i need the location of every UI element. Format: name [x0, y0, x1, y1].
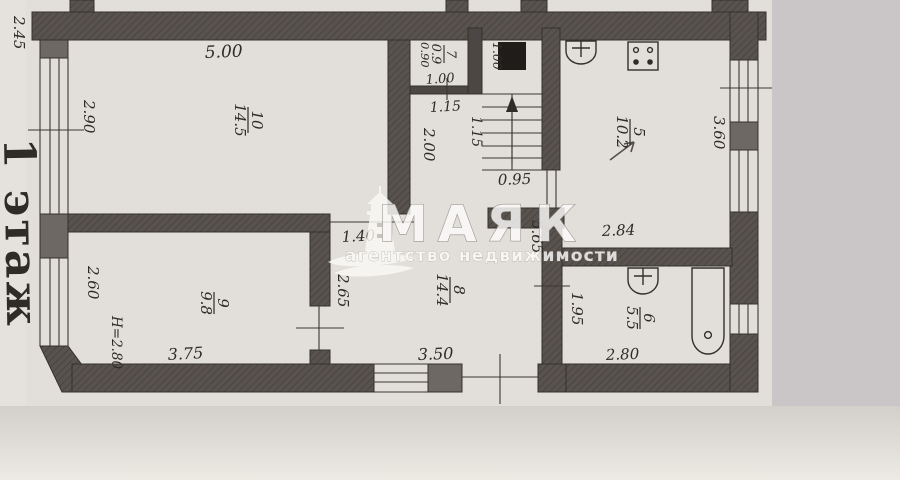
room-number: 8 — [450, 285, 468, 295]
room-number: 5 — [630, 127, 648, 137]
room-area: 14.5 — [231, 103, 249, 136]
floor-label: 1 этаж — [0, 137, 47, 329]
wall-segment-right — [730, 122, 758, 150]
wall-segment-bottom — [428, 364, 462, 392]
room-area: 10.2 — [613, 115, 631, 148]
dim-1-00-room7: 1.00 — [425, 71, 455, 88]
dim-5-00: 5.00 — [204, 42, 243, 63]
wall-rooms-9-8-divider — [310, 350, 330, 364]
wall-rooms-10-9-divider — [68, 214, 330, 232]
dim-2-90: 2.90 — [80, 99, 98, 134]
dim-2-45: 2.45 — [10, 15, 28, 49]
room-number: 10 — [248, 110, 266, 130]
wall-segment-right — [730, 12, 758, 60]
dim-2-80-bath: 2.80 — [605, 345, 640, 364]
wall-stair-left — [468, 28, 482, 94]
floor-plan-canvas: 10 14.5 7 0.9 5 10.2 8 14.4 9 9.8 6 5.5 … — [0, 0, 900, 480]
wall-segment-right — [730, 334, 758, 392]
dim-2-84: 2.84 — [601, 221, 636, 240]
dim-3-75: 3.75 — [167, 343, 204, 364]
wall-stub — [521, 0, 547, 12]
wall-stub — [712, 0, 748, 12]
ceiling-height-note: Н=2.80 — [108, 315, 124, 370]
wall-rooms-9-8-divider — [310, 232, 330, 306]
wall-room7-bottom — [410, 86, 470, 94]
dim-3-50: 3.50 — [417, 344, 453, 364]
dim-1-15-v: 1.15 — [468, 116, 484, 147]
wall-segment-bottom — [538, 364, 566, 392]
room-number: 7 — [443, 50, 458, 59]
dim-3-60: 3.60 — [710, 116, 728, 150]
wall-stub — [70, 0, 94, 12]
watermark-title: МАЯК — [378, 195, 586, 253]
room-area: 14.4 — [433, 273, 451, 306]
room-area: 5.5 — [623, 306, 641, 330]
dim-0-90: 0.90 — [418, 42, 432, 68]
dim-0-95: 0.95 — [498, 170, 532, 189]
watermark-subtitle: агентство недвижимости — [345, 246, 619, 266]
wall-segment-top — [32, 12, 766, 40]
dim-2-60: 2.60 — [84, 265, 102, 300]
wall-stub — [446, 0, 468, 12]
room-number: 6 — [640, 313, 658, 323]
wall-stair-right — [542, 28, 560, 170]
dim-1-15-h: 1.15 — [429, 98, 461, 116]
room-number: 9 — [214, 298, 232, 308]
wall-segment-right — [730, 212, 758, 304]
paper-bottom-margin — [0, 406, 900, 480]
wall-room10-right — [388, 40, 410, 214]
dim-1-95: 1.95 — [568, 292, 586, 325]
dim-2-00: 2.00 — [420, 127, 438, 162]
wall-segment-left — [40, 40, 68, 58]
room-area: 9.8 — [197, 291, 215, 315]
floor-plan-photo: 10 14.5 7 0.9 5 10.2 8 14.4 9 9.8 6 5.5 … — [0, 0, 900, 480]
wall-segment-bottom — [566, 364, 758, 392]
dim-2-65: 2.65 — [334, 273, 352, 307]
dim-1-00-flue: 1.00 — [490, 42, 505, 70]
